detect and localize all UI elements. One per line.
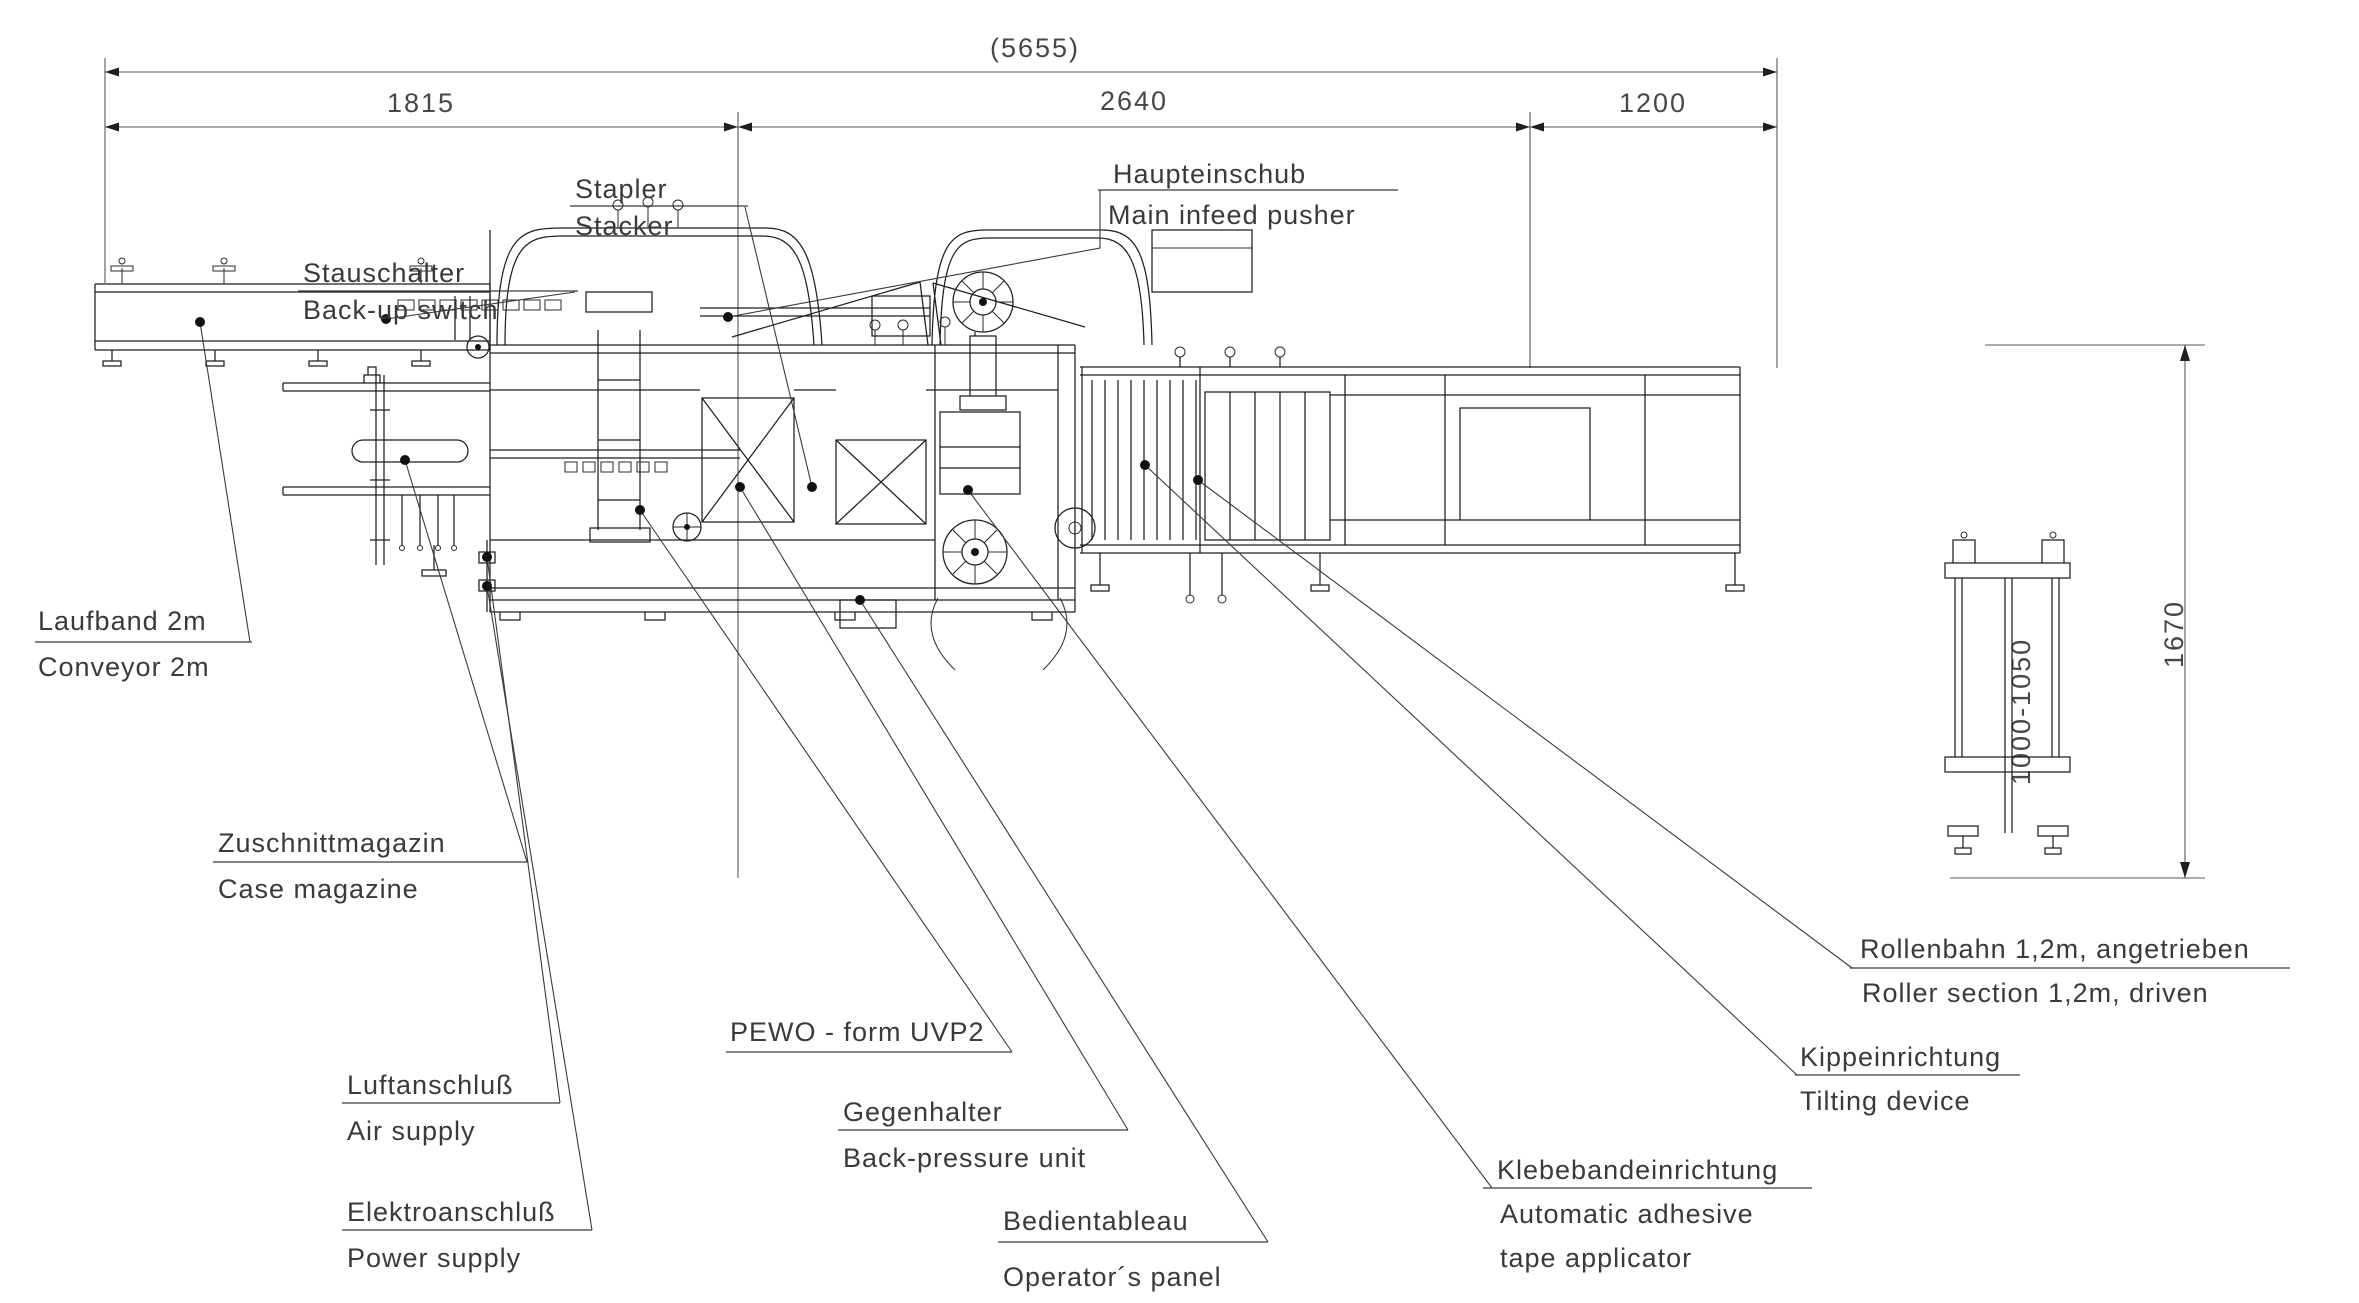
handwheel-hub [684, 524, 690, 530]
tape-reels [943, 272, 1013, 584]
roller-section-frame [1080, 357, 1744, 595]
label-kippeinrichtung: Kippeinrichtung Tilting device [1795, 1042, 2020, 1116]
leader-luftanschluss [482, 552, 560, 1103]
dim-total-length: (5655) [990, 33, 1080, 63]
rail-pin-icon [1175, 347, 1185, 357]
label-gegenhalter: Gegenhalter Back-pressure unit [838, 1097, 1128, 1173]
label-stapler-en: Stacker [575, 211, 674, 241]
label-zuschnittmagazin-de: Zuschnittmagazin [218, 828, 446, 858]
hood-pin-icon [940, 317, 950, 327]
label-rollenbahn: Rollenbahn 1,2m, angetrieben Roller sect… [1850, 934, 2290, 1008]
clamp-knob-icon [221, 258, 227, 264]
hose-loops [931, 598, 1067, 670]
dim-segment-middle: 2640 [1100, 86, 1168, 116]
magazine-pin [400, 546, 405, 551]
dim-segment-right: 1200 [1619, 88, 1687, 118]
label-haupteinschub-de: Haupteinschub [1113, 159, 1306, 189]
case-blank-stack [565, 462, 667, 472]
hood-pin-icon [673, 200, 683, 210]
label-bedientableau: Bedientableau Operator´s panel [998, 1206, 1268, 1292]
magazine-guide-bar [352, 440, 468, 462]
label-bedientableau-en: Operator´s panel [1003, 1262, 1222, 1292]
machine-hood [497, 228, 1152, 345]
label-luftanschluss: Luftanschluß Air supply [342, 1070, 560, 1146]
label-stauschalter-de: Stauschalter [303, 258, 465, 288]
label-klebeband-en1: Automatic adhesive [1500, 1199, 1754, 1229]
label-luftanschluss-de: Luftanschluß [347, 1070, 514, 1100]
operator-panel-box [840, 600, 896, 628]
technical-drawing-canvas: (5655) 1815 2640 1200 1670 1000-1050 [0, 0, 2359, 1303]
label-laufband: Laufband 2m Conveyor 2m [35, 606, 252, 682]
magazine-pin [436, 546, 441, 551]
label-kippeinrichtung-en: Tilting device [1800, 1086, 1971, 1116]
rail-pin-icon [1225, 347, 1235, 357]
tape-reel-bottom-hub [971, 548, 979, 556]
dim-roller-height-range: 1000-1050 [2006, 638, 2036, 785]
label-klebeband: Klebebandeinrichtung Automatic adhesive … [1483, 1155, 1812, 1273]
stand-bolt-icon [1961, 532, 1967, 538]
magazine-arms [283, 367, 490, 576]
label-zuschnittmagazin-en: Case magazine [218, 874, 419, 904]
hood-pin-icon [898, 320, 908, 330]
rail-pin-icon [1275, 347, 1285, 357]
label-bedientableau-de: Bedientableau [1003, 1206, 1189, 1236]
label-rollenbahn-de: Rollenbahn 1,2m, angetrieben [1860, 934, 2250, 964]
machine-elevation-drawing: (5655) 1815 2640 1200 1670 1000-1050 [0, 0, 2359, 1303]
label-machine-name: PEWO - form UVP2 [730, 1017, 985, 1047]
back-pressure-crossed-box [702, 398, 794, 522]
label-pewo: PEWO - form UVP2 [726, 1017, 1012, 1052]
label-stapler-de: Stapler [575, 174, 668, 204]
screw-foot-icon [1186, 595, 1194, 603]
callout-labels: Stauschalter Back-up switch Stapler Stac… [35, 159, 2290, 1292]
stacker-column [586, 292, 652, 542]
tape-unit-support [940, 332, 1020, 494]
label-elektroanschluss: Elektroanschluß Power supply [342, 1197, 592, 1273]
label-elektroanschluss-en: Power supply [347, 1243, 521, 1273]
stand-bolt-icon [2050, 532, 2056, 538]
label-stauschalter-en: Back-up switch [303, 295, 499, 325]
machine-frame-outline [490, 230, 1075, 620]
leader-haupteinschub [723, 190, 1100, 322]
leader-rollenbahn [1193, 475, 1852, 968]
magazine-pin [452, 546, 457, 551]
dimension-arrowheads [105, 68, 2190, 879]
dim-overall-height: 1670 [2159, 600, 2189, 668]
label-gegenhalter-de: Gegenhalter [843, 1097, 1003, 1127]
label-gegenhalter-en: Back-pressure unit [843, 1143, 1086, 1173]
case-magazine-assembly [283, 367, 490, 576]
label-stauschalter: Stauschalter Back-up switch [298, 258, 578, 325]
leader-klebeband [963, 485, 1492, 1188]
label-luftanschluss-en: Air supply [347, 1116, 476, 1146]
tilting-and-roller-section [1080, 347, 1744, 603]
leader-elektroanschluss [482, 581, 592, 1230]
leader-pewo [635, 505, 1012, 1052]
top-right-cabinet [1152, 230, 1252, 292]
magazine-pin [418, 546, 423, 551]
label-elektroanschluss-de: Elektroanschluß [347, 1197, 556, 1227]
label-kippeinrichtung-de: Kippeinrichtung [1800, 1042, 2001, 1072]
main-machine-frame [490, 197, 1252, 620]
clamp-knob-icon [119, 258, 125, 264]
label-zuschnittmagazin: Zuschnittmagazin Case magazine [213, 828, 527, 904]
leader-kippeinrichtung [1140, 460, 1797, 1075]
machine-internals [479, 292, 1095, 670]
sprocket-hub [475, 344, 481, 350]
label-rollenbahn-en: Roller section 1,2m, driven [1862, 978, 2209, 1008]
label-haupteinschub-en: Main infeed pusher [1108, 200, 1356, 230]
pusher-crossed-box [836, 440, 926, 524]
screw-foot-icon [1218, 595, 1226, 603]
label-laufband-de: Laufband 2m [38, 606, 207, 636]
label-klebeband-de: Klebebandeinrichtung [1497, 1155, 1778, 1185]
label-stapler: Stapler Stacker [570, 174, 748, 241]
dim-segment-left: 1815 [387, 88, 455, 118]
label-haupteinschub: Haupteinschub Main infeed pusher [1098, 159, 1398, 230]
label-laufband-en: Conveyor 2m [38, 652, 210, 682]
tape-reel-top-hub [979, 298, 987, 306]
leader-zuschnittmagazin [400, 455, 527, 862]
label-klebeband-en2: tape applicator [1500, 1243, 1692, 1273]
